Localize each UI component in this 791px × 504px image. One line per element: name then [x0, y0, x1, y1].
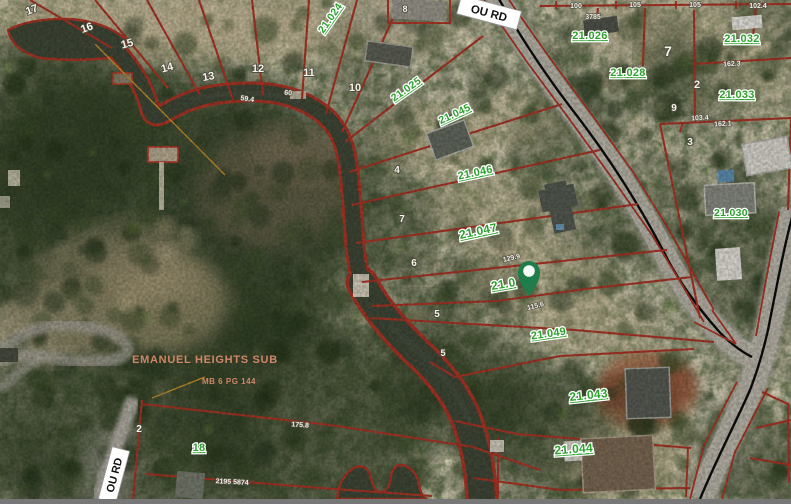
- svg-text:6: 6: [411, 258, 417, 269]
- svg-text:103.4: 103.4: [691, 115, 709, 123]
- svg-text:7: 7: [664, 43, 672, 59]
- svg-text:5: 5: [440, 348, 445, 358]
- svg-text:7: 7: [399, 214, 405, 225]
- svg-text:4: 4: [394, 165, 400, 176]
- svg-text:3785: 3785: [585, 14, 601, 21]
- svg-text:18: 18: [193, 442, 206, 454]
- svg-text:2: 2: [136, 424, 142, 435]
- svg-text:12: 12: [252, 63, 264, 75]
- svg-text:21.026: 21.026: [572, 30, 607, 42]
- svg-text:21.044: 21.044: [554, 441, 593, 458]
- svg-text:9: 9: [671, 103, 677, 114]
- svg-text:5: 5: [434, 309, 440, 320]
- svg-text:105: 105: [629, 2, 641, 9]
- svg-text:162.3: 162.3: [723, 61, 741, 69]
- svg-text:11: 11: [303, 67, 315, 79]
- svg-text:175.8: 175.8: [291, 421, 309, 429]
- svg-text:102.4: 102.4: [749, 3, 767, 10]
- svg-text:MB 6 PG 144: MB 6 PG 144: [202, 377, 256, 386]
- svg-text:3: 3: [687, 137, 693, 148]
- svg-text:EMANUEL HEIGHTS SUB: EMANUEL HEIGHTS SUB: [132, 354, 278, 366]
- svg-text:21.030: 21.030: [714, 207, 748, 219]
- svg-text:8: 8: [402, 4, 407, 14]
- svg-text:2: 2: [694, 79, 700, 91]
- svg-text:21.032: 21.032: [724, 33, 759, 45]
- svg-text:21.033: 21.033: [719, 89, 754, 101]
- svg-text:60: 60: [284, 90, 292, 98]
- svg-text:13: 13: [201, 70, 215, 84]
- svg-text:100: 100: [570, 3, 582, 10]
- svg-text:162.1: 162.1: [714, 121, 732, 129]
- svg-text:10: 10: [349, 82, 361, 94]
- svg-text:21.028: 21.028: [610, 67, 645, 79]
- svg-text:105: 105: [689, 2, 701, 9]
